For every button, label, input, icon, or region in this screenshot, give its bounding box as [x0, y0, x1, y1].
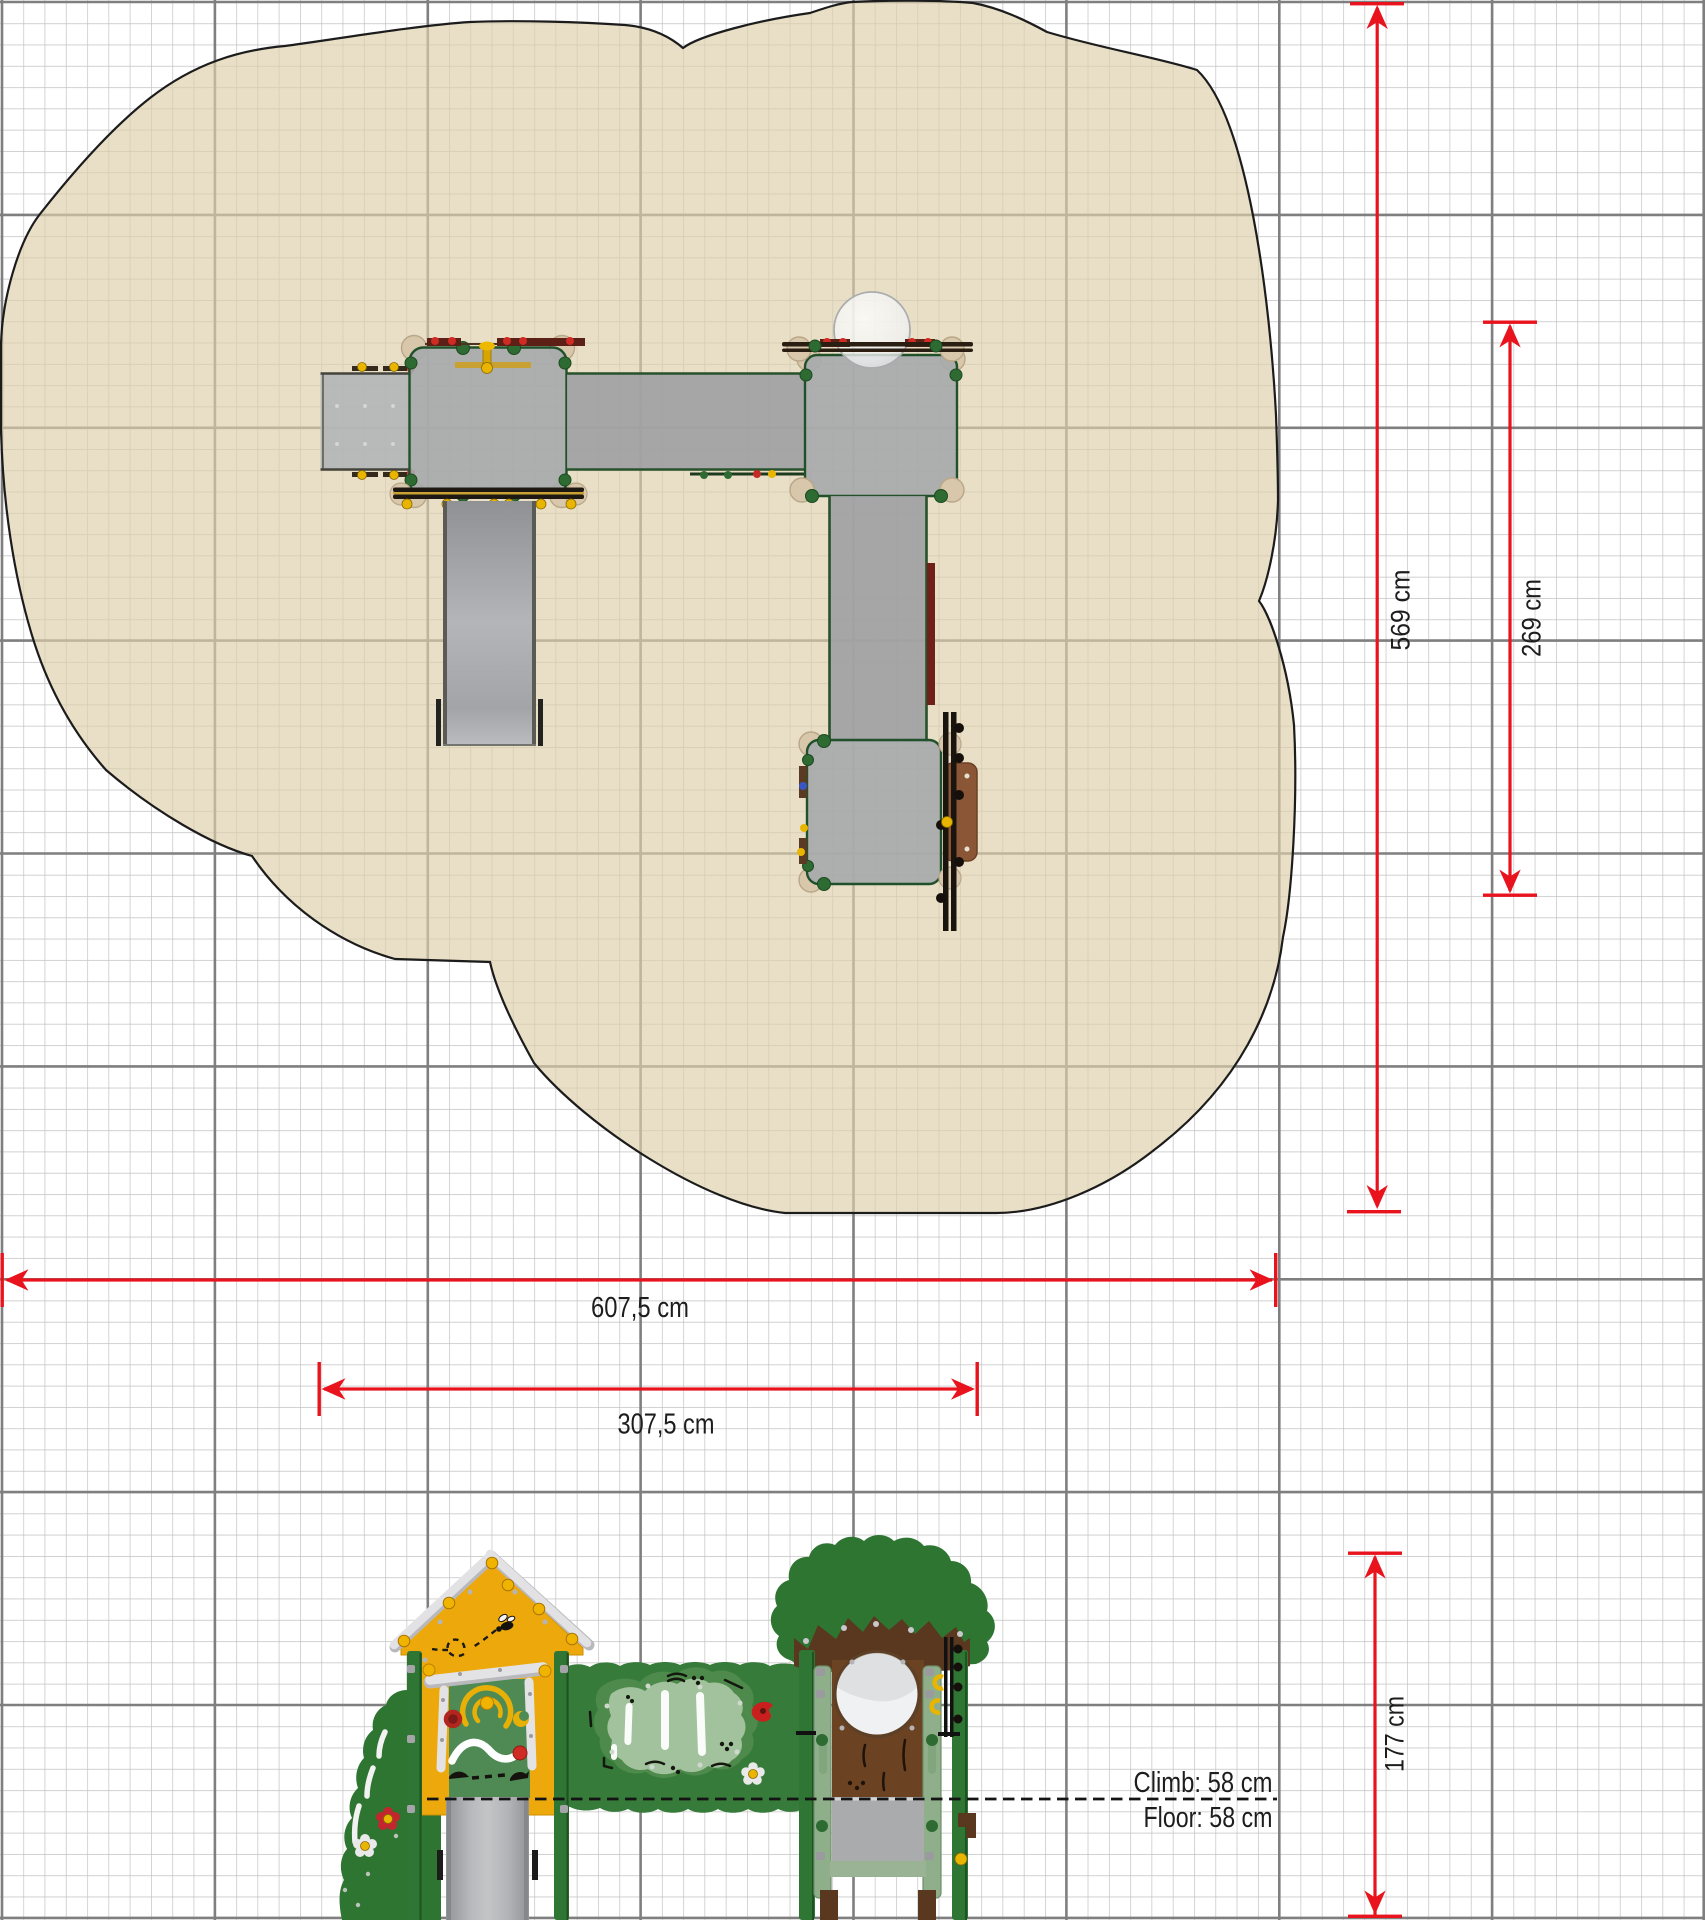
svg-text:307,5 cm: 307,5 cm — [618, 1409, 715, 1441]
svg-text:177 cm: 177 cm — [1380, 1696, 1410, 1772]
svg-text:607,5 cm: 607,5 cm — [591, 1292, 689, 1324]
svg-text:Climb: 58 cm: Climb: 58 cm — [1134, 1767, 1273, 1799]
svg-text:Floor: 58 cm: Floor: 58 cm — [1144, 1802, 1273, 1834]
svg-text:569 cm: 569 cm — [1386, 570, 1416, 651]
svg-text:269 cm: 269 cm — [1517, 579, 1547, 657]
